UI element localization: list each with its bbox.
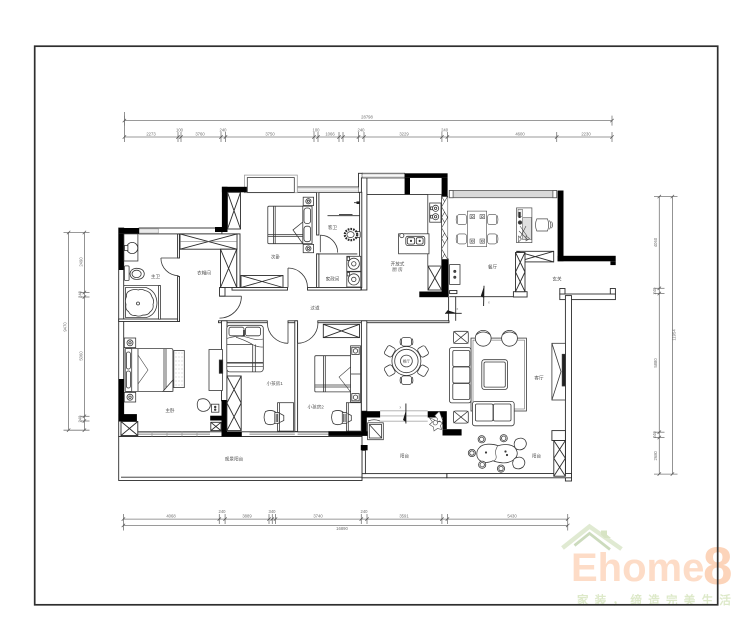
svg-text:240: 240: [219, 509, 227, 514]
svg-text:240: 240: [652, 287, 657, 295]
svg-text:x: x: [457, 307, 459, 311]
svg-text:阳台: 阳台: [532, 452, 542, 459]
svg-text:240: 240: [78, 415, 83, 423]
svg-text:衣帽间: 衣帽间: [197, 270, 211, 277]
svg-text:厨 房: 厨 房: [392, 266, 403, 273]
svg-text:5430: 5430: [507, 514, 517, 519]
svg-text:x: x: [488, 300, 490, 304]
svg-text:家政间: 家政间: [326, 275, 340, 282]
svg-text:16890: 16890: [336, 526, 348, 531]
svg-text:主卫: 主卫: [151, 273, 161, 279]
svg-text:2680: 2680: [653, 450, 658, 460]
svg-text:240: 240: [78, 290, 83, 298]
svg-text:4068: 4068: [166, 514, 176, 519]
svg-text:1066: 1066: [325, 132, 335, 137]
svg-text:240: 240: [441, 128, 449, 133]
svg-text:5880: 5880: [653, 358, 658, 368]
svg-text:3229: 3229: [399, 132, 409, 137]
svg-text:9470: 9470: [63, 322, 68, 332]
svg-text:240: 240: [361, 509, 369, 514]
svg-text:11954: 11954: [672, 329, 677, 341]
svg-text:主卧: 主卧: [165, 407, 175, 414]
svg-text:2230: 2230: [581, 132, 591, 137]
svg-text:客卫: 客卫: [328, 224, 338, 231]
svg-text:餐厅: 餐厅: [403, 359, 411, 364]
svg-text:小孩房1: 小孩房1: [267, 380, 284, 387]
svg-text:4600: 4600: [515, 132, 525, 137]
svg-text:x: x: [400, 405, 402, 409]
svg-text:客厅: 客厅: [534, 375, 544, 382]
svg-text:玄关: 玄关: [552, 276, 562, 283]
svg-text:过道: 过道: [310, 304, 320, 311]
svg-text:3760: 3760: [195, 132, 205, 137]
svg-text:阳台: 阳台: [400, 452, 410, 459]
svg-text:3591: 3591: [399, 514, 409, 519]
svg-text:Ehome: Ehome: [571, 546, 704, 590]
svg-text:240: 240: [358, 128, 366, 133]
svg-text:100: 100: [176, 128, 184, 133]
svg-text:240: 240: [220, 128, 228, 133]
svg-text:3889: 3889: [242, 514, 252, 519]
svg-text:28798: 28798: [361, 114, 373, 119]
svg-text:小孩房2: 小孩房2: [308, 404, 325, 411]
svg-text:5060: 5060: [79, 351, 84, 361]
svg-text:观景阳台: 观景阳台: [225, 455, 244, 462]
svg-text:2490: 2490: [79, 257, 84, 267]
svg-text:次卧: 次卧: [271, 253, 281, 260]
svg-text:100: 100: [313, 128, 321, 133]
svg-text:2273: 2273: [146, 132, 156, 137]
svg-text:240: 240: [652, 431, 657, 439]
svg-text:4060: 4060: [653, 237, 658, 247]
svg-text:340: 340: [269, 509, 277, 514]
svg-text:餐厅: 餐厅: [488, 263, 498, 270]
svg-text:3750: 3750: [265, 132, 275, 137]
svg-text:3740: 3740: [313, 514, 323, 519]
